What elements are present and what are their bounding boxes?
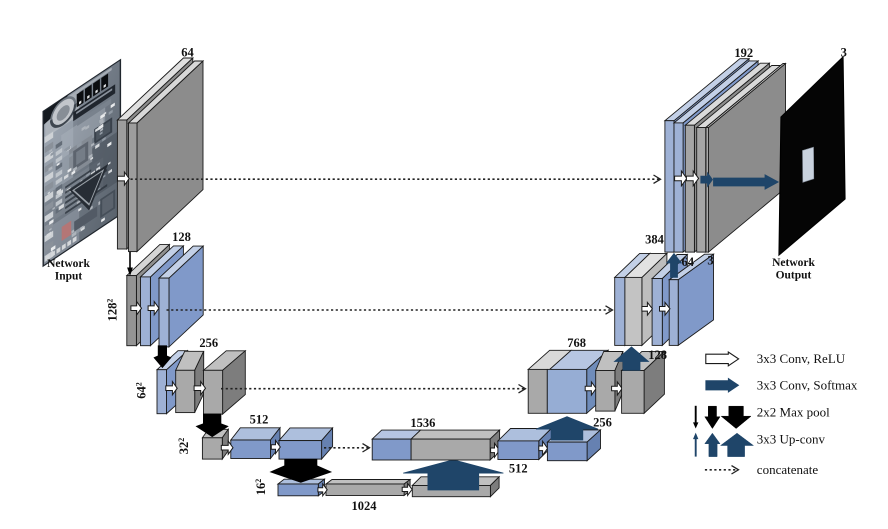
svg-text:3: 3 bbox=[707, 254, 713, 268]
svg-text:128: 128 bbox=[648, 348, 667, 362]
svg-text:3: 3 bbox=[841, 46, 847, 60]
svg-text:256: 256 bbox=[199, 336, 218, 350]
svg-text:3x3 Conv, Softmax: 3x3 Conv, Softmax bbox=[757, 378, 858, 393]
svg-text:512: 512 bbox=[250, 413, 269, 427]
svg-text:384: 384 bbox=[645, 233, 665, 247]
svg-text:3x3 Conv, ReLU: 3x3 Conv, ReLU bbox=[757, 351, 846, 366]
svg-text:concatenate: concatenate bbox=[757, 462, 819, 477]
svg-text:3x3 Up-conv: 3x3 Up-conv bbox=[757, 432, 826, 447]
svg-text:512: 512 bbox=[509, 462, 528, 476]
svg-text:64: 64 bbox=[181, 46, 194, 60]
svg-text:NetworkOutput: NetworkOutput bbox=[772, 257, 815, 282]
svg-text:128: 128 bbox=[172, 230, 191, 244]
svg-text:1024: 1024 bbox=[352, 499, 378, 513]
svg-text:1536: 1536 bbox=[410, 416, 435, 430]
svg-text:768: 768 bbox=[567, 336, 586, 350]
svg-text:64: 64 bbox=[682, 255, 695, 269]
svg-text:256: 256 bbox=[593, 415, 612, 429]
svg-text:2x2 Max pool: 2x2 Max pool bbox=[757, 405, 830, 420]
svg-text:192: 192 bbox=[734, 46, 753, 60]
